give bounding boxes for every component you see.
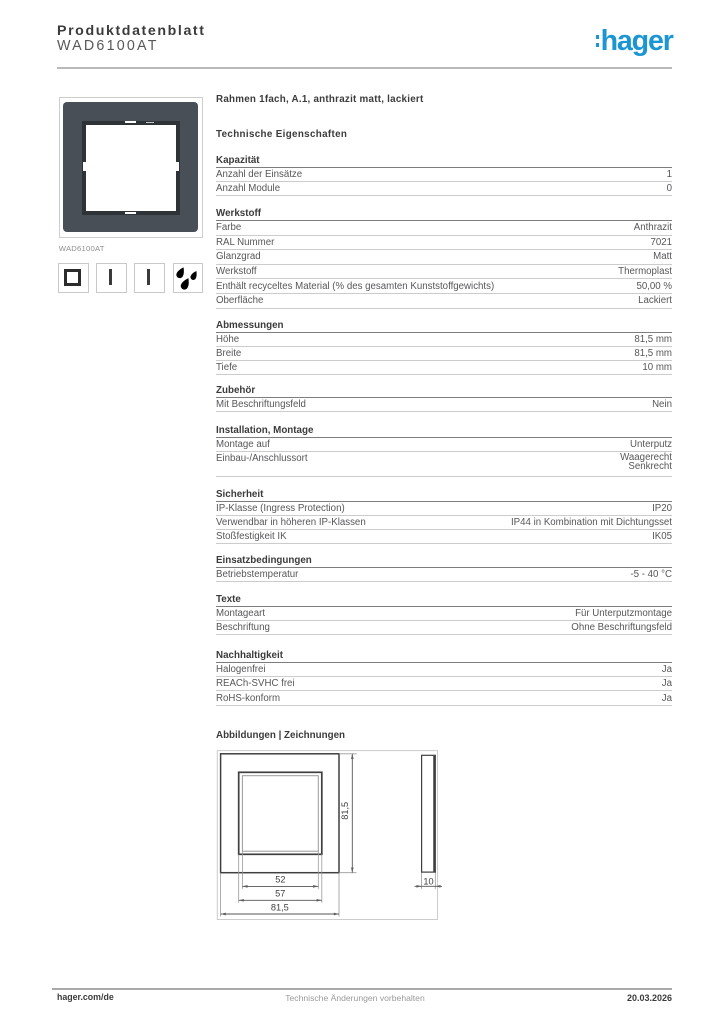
svg-text:81,5: 81,5 (340, 802, 350, 820)
svg-text:81,5: 81,5 (271, 902, 289, 912)
svg-text:52: 52 (275, 875, 285, 885)
svg-text:57: 57 (275, 889, 285, 899)
svg-text:10: 10 (423, 876, 433, 886)
